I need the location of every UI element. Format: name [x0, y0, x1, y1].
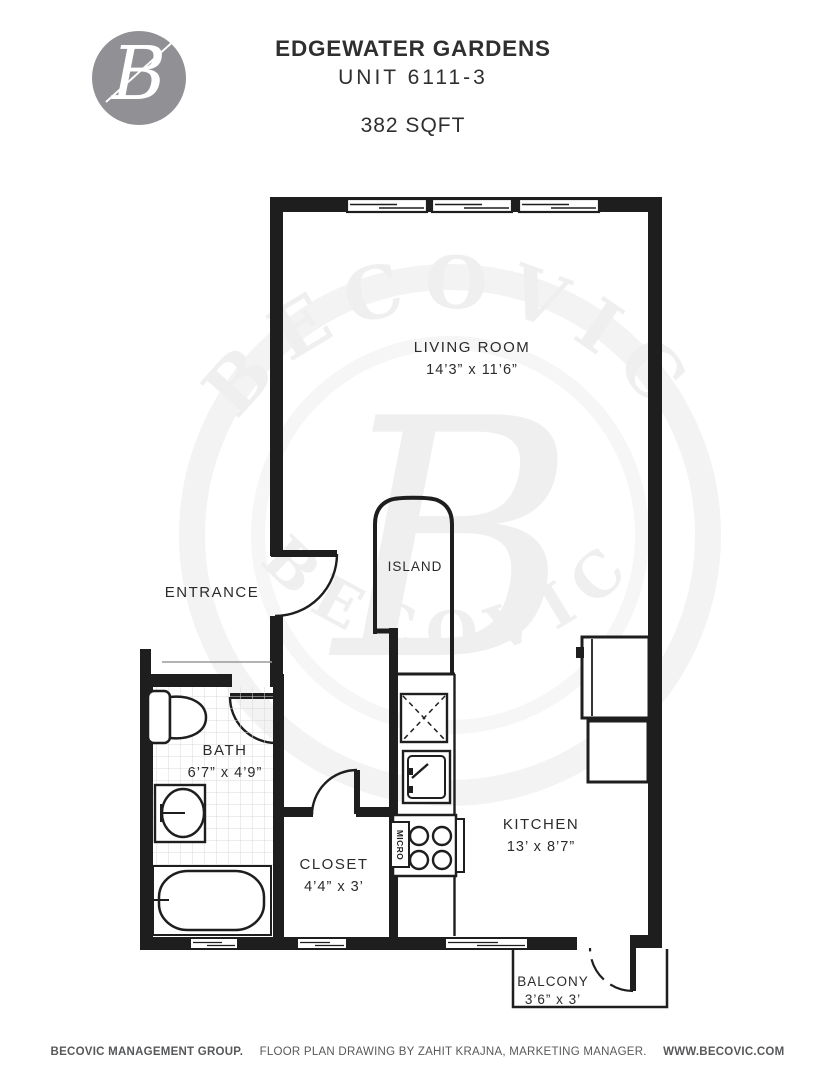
kitchen-label: KITCHEN	[503, 816, 579, 833]
wall-closet-top-left	[284, 807, 313, 817]
refrigerator	[576, 637, 649, 782]
kitchen-dims: 13’ x 8’7”	[507, 839, 575, 855]
kitchen-sink	[403, 751, 450, 803]
balcony-door	[590, 948, 633, 991]
burner	[410, 851, 428, 869]
footer-credit: FLOOR PLAN DRAWING BY ZAHIT KRAJNA, MARK…	[260, 1046, 647, 1058]
closet-dims: 4’4” x 3’	[304, 879, 364, 895]
microwave-label: MICRO	[395, 830, 405, 860]
bath-label: BATH	[203, 742, 248, 759]
bath-dims: 6’7” x 4’9”	[188, 765, 263, 781]
living-room-dims: 14’3” x 11’6”	[426, 362, 518, 378]
floor-plan-page: B EDGEWATER GARDENS UNIT 6111-3 382 SQFT…	[0, 0, 835, 1080]
living-room-label: LIVING ROOM	[414, 339, 531, 356]
bath-sink	[155, 785, 205, 842]
wall-balcony-step	[630, 935, 662, 948]
footer-company: BECOVIC MANAGEMENT GROUP.	[51, 1046, 244, 1058]
microwave: MICRO	[391, 822, 409, 867]
wall-entry-stub	[140, 649, 151, 674]
closet-label: CLOSET	[299, 856, 368, 873]
burner	[410, 827, 428, 845]
window-top-2	[432, 199, 512, 212]
footer-website: WWW.BECOVIC.COM	[663, 1046, 784, 1058]
wall-left-upper	[270, 197, 283, 556]
wall-bath-top-jamb	[273, 674, 284, 687]
window-top-1	[347, 199, 427, 212]
burner	[433, 851, 451, 869]
window-bath	[190, 938, 238, 949]
burner	[433, 827, 451, 845]
wall-bath-right	[273, 687, 284, 937]
footer-credit-line: BECOVIC MANAGEMENT GROUP. FLOOR PLAN DRA…	[0, 1046, 835, 1058]
balcony-dims: 3’6” x 3’	[525, 992, 581, 1007]
balcony-label: BALCONY	[517, 974, 589, 989]
island-label: ISLAND	[388, 559, 443, 574]
wall-bath-top	[140, 674, 232, 687]
window-kitchen	[445, 938, 528, 949]
window-closet	[297, 938, 347, 949]
wall-right	[648, 197, 662, 948]
bathtub	[147, 866, 271, 935]
floor-plan-svg: BECOVIC BECOVIC B	[0, 0, 835, 1080]
dishwasher	[401, 694, 447, 742]
entrance-label: ENTRANCE	[165, 584, 260, 601]
window-top-3	[519, 199, 599, 212]
